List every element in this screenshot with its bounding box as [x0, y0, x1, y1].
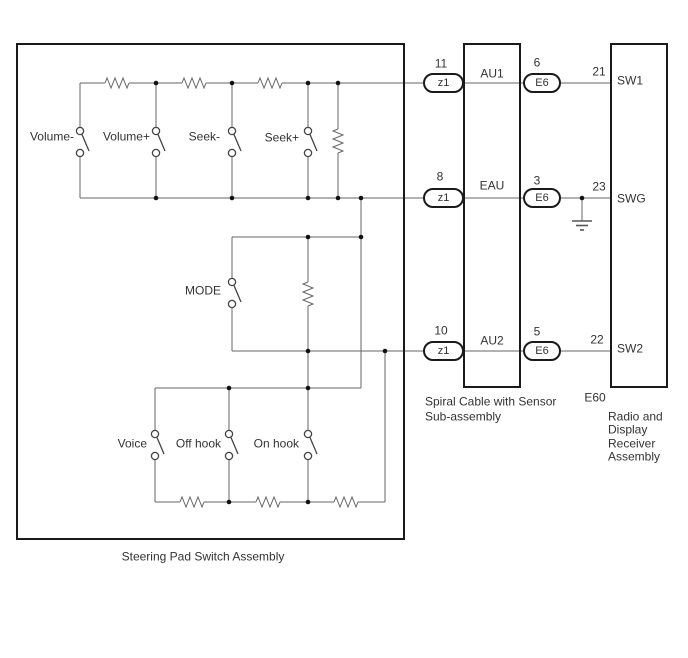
switch-label-voice: Voice	[118, 437, 147, 450]
connector-label: z1	[438, 193, 450, 204]
pin-number: 23	[592, 180, 605, 193]
switch-label-seek-minus: Seek-	[189, 130, 220, 143]
pin-number: 5	[534, 325, 541, 338]
pin-number: 8	[437, 170, 444, 183]
radio-caption-line2: Display	[608, 423, 647, 436]
ground-icon	[572, 221, 592, 230]
connector-label: z1	[438, 78, 450, 89]
connector-e6-pin5: E6	[523, 341, 561, 361]
radio-terminal-label: SWG	[617, 192, 646, 205]
switch-label-mode: MODE	[185, 284, 221, 297]
radio-caption-line4: Assembly	[608, 450, 660, 463]
spiral-terminal-label: AU2	[480, 334, 503, 347]
switch-label-volume-minus: Volume-	[30, 130, 74, 143]
radio-terminal-label: SW2	[617, 342, 643, 355]
spiral-terminal-label: AU1	[480, 67, 503, 80]
connector-label: E6	[535, 193, 548, 204]
switch-label-on-hook: On hook	[254, 437, 299, 450]
pin-number: 22	[590, 333, 603, 346]
pin-number: 6	[534, 56, 541, 69]
pin-number: 10	[434, 324, 447, 337]
pin-number: 21	[592, 65, 605, 78]
connector-z1-pin11: z1	[423, 73, 464, 93]
connector-label: E6	[535, 78, 548, 89]
radio-terminal-label: SW1	[617, 74, 643, 87]
spiral-terminal-label: EAU	[480, 179, 505, 192]
connector-z1-pin8: z1	[423, 188, 464, 208]
switch-label-volume-plus: Volume+	[103, 130, 150, 143]
pin-number: 3	[534, 174, 541, 187]
spiral-cable-caption-line2: Sub-assembly	[425, 410, 501, 423]
pin-number: 11	[435, 57, 447, 70]
wiring-diagram: z1 E6 z1 E6 z1 E6 11 AU1 6 21 SW1 8 EAU …	[0, 0, 688, 658]
connector-label: E6	[535, 346, 548, 357]
switch-label-off-hook: Off hook	[176, 437, 221, 450]
radio-receiver-box	[610, 43, 668, 388]
connector-e6-pin3: E6	[523, 188, 561, 208]
connector-e6-pin6: E6	[523, 73, 561, 93]
radio-connector-id: E60	[584, 391, 605, 404]
spiral-cable-caption-line1: Spiral Cable with Sensor	[425, 395, 556, 408]
connector-label: z1	[438, 346, 450, 357]
steering-pad-assembly-caption: Steering Pad Switch Assembly	[122, 550, 285, 563]
switch-label-seek-plus: Seek+	[265, 131, 299, 144]
connector-z1-pin10: z1	[423, 341, 464, 361]
